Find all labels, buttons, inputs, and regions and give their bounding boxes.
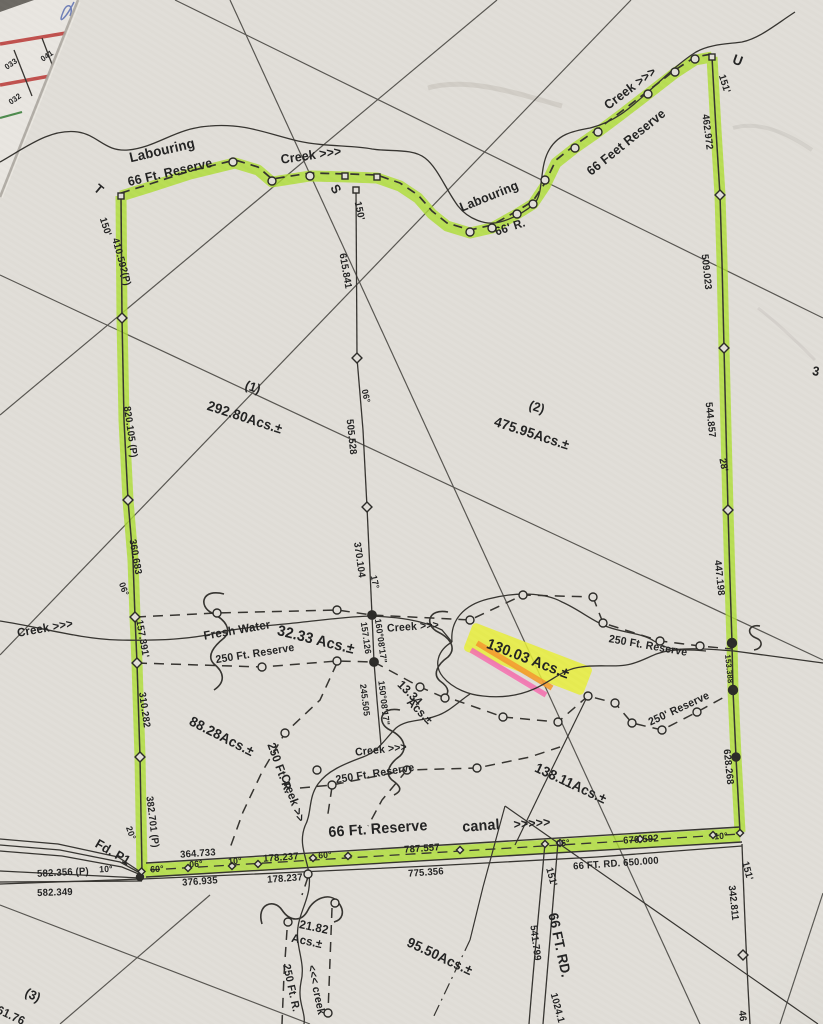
main-sheet — [0, 0, 823, 1024]
survey-plat-drawing — [0, 0, 823, 1024]
survey-plat-photo: 033041032TLabouring66 Ft. ReserveCreek >… — [0, 0, 823, 1024]
